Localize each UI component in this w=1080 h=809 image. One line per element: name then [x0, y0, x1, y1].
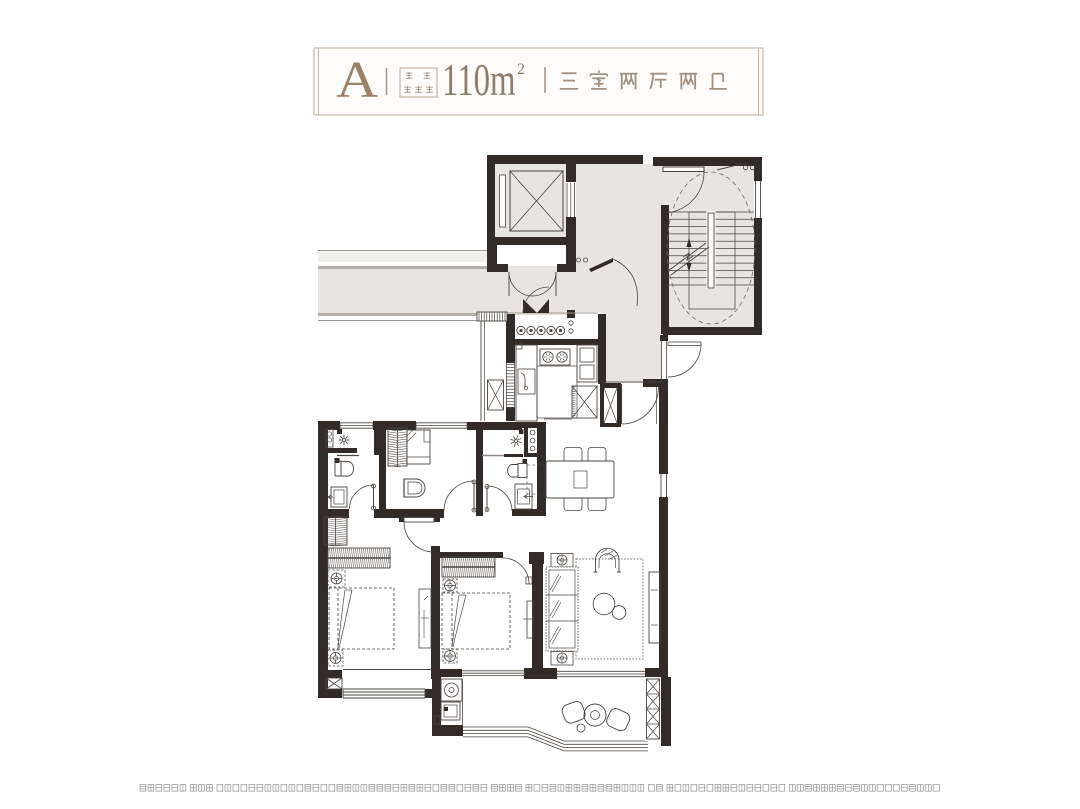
svg-text:A: A	[336, 51, 378, 108]
svg-text:110m: 110m	[442, 55, 516, 105]
svg-text:2: 2	[517, 61, 525, 78]
